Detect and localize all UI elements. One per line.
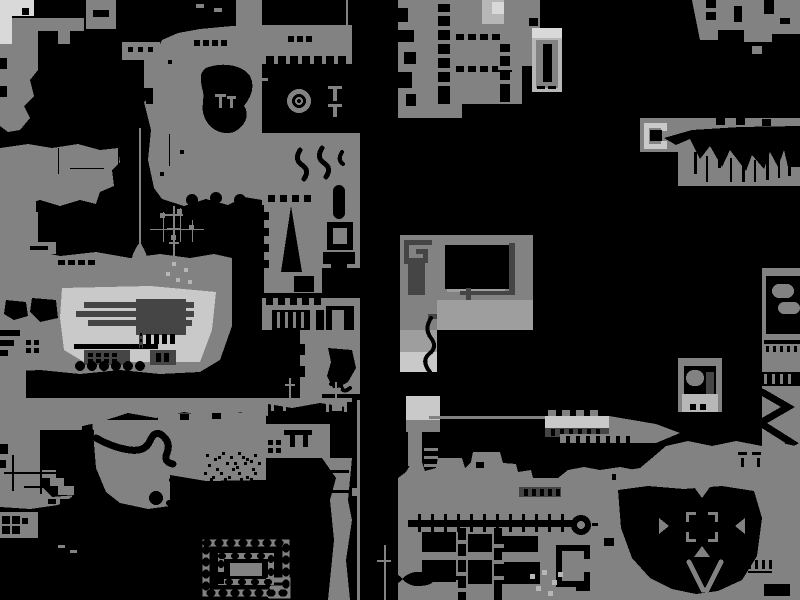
hairline-v2	[58, 148, 59, 174]
room-top	[532, 28, 562, 38]
east-curve-1	[772, 284, 794, 298]
dock-slot	[650, 130, 662, 141]
pod-blob	[686, 370, 704, 386]
mesa-notch	[476, 462, 484, 468]
train-body	[545, 416, 609, 429]
hairline-v3	[169, 134, 170, 166]
mid-slot	[316, 310, 324, 330]
train-post	[408, 432, 422, 466]
eye-hole	[297, 99, 301, 103]
hairline-s1	[384, 545, 386, 600]
flag-dashes	[128, 47, 153, 52]
post-arms	[424, 448, 438, 467]
game-map-screenshot	[0, 0, 800, 600]
se-block	[764, 584, 790, 596]
spire-bite	[294, 276, 314, 292]
grid-block	[398, 0, 540, 118]
thermo-foot	[331, 264, 347, 269]
east-curve-2	[778, 302, 800, 314]
ship-block	[136, 299, 186, 335]
pole	[173, 206, 175, 258]
ne-tooth	[704, 8, 718, 12]
west-flag-slot	[30, 246, 48, 250]
east-comb	[764, 340, 800, 344]
hairline-s1-bar	[377, 560, 391, 562]
lower-band	[266, 424, 330, 458]
fish-dashes	[440, 576, 477, 580]
thermo-base	[323, 252, 355, 264]
ne-dash	[780, 18, 790, 24]
ship-band	[74, 344, 158, 349]
greek-key	[404, 240, 432, 264]
antenna-dots	[140, 333, 142, 348]
train-rail	[429, 416, 547, 419]
light-patch-2	[492, 2, 504, 14]
complex-window	[445, 245, 509, 289]
sw-panel	[0, 512, 38, 538]
hairline-top	[346, 0, 348, 26]
complex-col-lower	[400, 352, 437, 372]
thermo-box-inner	[333, 228, 347, 244]
thermo-bulb	[333, 185, 345, 219]
drop-line	[139, 128, 141, 244]
maze-core	[230, 563, 262, 576]
room-slot	[543, 44, 552, 82]
channel-blob	[149, 491, 163, 505]
ring-core	[577, 521, 585, 529]
complex-light-region	[437, 300, 533, 330]
north-notch	[146, 88, 153, 104]
ne-bit	[752, 46, 762, 54]
world-map-canvas	[0, 0, 800, 600]
train-block-base	[406, 420, 440, 432]
dark-pillar	[408, 263, 425, 295]
thin-column	[357, 400, 360, 600]
canyon-dashes	[48, 499, 80, 504]
s-shelf	[158, 412, 266, 481]
cave-top-marks	[716, 118, 771, 126]
eye-house-merlons	[266, 56, 346, 64]
corner-highlight-col	[0, 0, 12, 46]
corner-dot	[22, 8, 29, 15]
ship-block-2	[150, 350, 176, 365]
strip-top-slot	[93, 10, 109, 17]
eye-house-dots	[288, 36, 312, 42]
hairline-v1	[118, 150, 119, 192]
maze-gap	[214, 572, 224, 584]
sw-panel-dot	[22, 518, 28, 524]
hairline-h1	[70, 168, 104, 169]
west-tail	[0, 370, 26, 400]
